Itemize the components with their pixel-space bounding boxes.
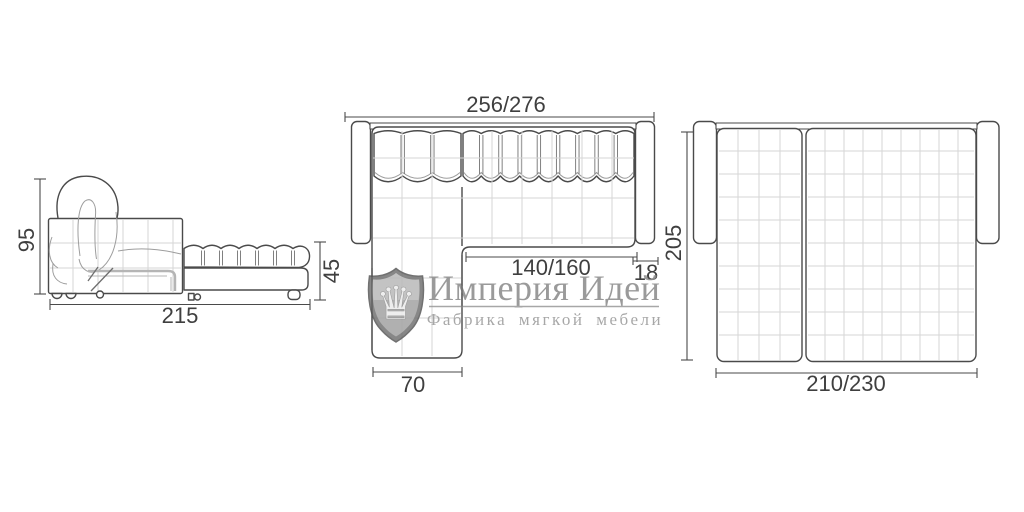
bed-armrest-left <box>694 122 717 244</box>
watermark-brand: Империя Идей <box>428 268 660 308</box>
dim-bed-depth: 205 <box>661 132 693 360</box>
furniture-dimensions-diagram: 95 <box>0 0 1024 512</box>
backrest-cushions-right <box>463 131 634 182</box>
bed-view: 205 210/230 <box>661 122 999 397</box>
armrest-right <box>636 122 655 244</box>
dim-bed-width: 210/230 <box>716 368 977 396</box>
dim-label-length: 215 <box>162 303 199 328</box>
chaise-foot <box>288 290 300 300</box>
dim-chaise-width: 70 <box>373 367 462 397</box>
backrest-arch <box>57 176 118 218</box>
sofa-body-outline <box>49 219 183 294</box>
dim-label-bed-width: 210/230 <box>806 371 886 396</box>
armrest-left <box>352 122 371 244</box>
bed-armrest-right <box>977 122 1000 244</box>
backrest-cushions-left <box>374 131 461 182</box>
dim-total-width: 256/276 <box>345 92 654 122</box>
diagram-canvas: 95 <box>0 0 1024 512</box>
bed-panel-right <box>806 129 976 362</box>
watermark-tagline: Фабрика мягкой мебели <box>427 310 663 329</box>
crown-icon: ♛ <box>375 276 416 330</box>
dim-seat-height: 45 <box>314 242 344 300</box>
dim-length: 215 <box>50 299 310 328</box>
dim-label-height: 95 <box>14 228 39 252</box>
dim-height: 95 <box>14 179 46 294</box>
dim-label-chaise-width: 70 <box>401 372 425 397</box>
dim-label-total-width: 256/276 <box>466 92 546 117</box>
top-view: 256/276 140/160 18 70 <box>345 92 658 397</box>
dim-label-bed-depth: 205 <box>661 225 686 262</box>
dim-label-seat-height: 45 <box>319 259 344 283</box>
chaise-base <box>184 268 308 290</box>
side-view: 95 <box>14 176 344 328</box>
chaise-cushions-side <box>184 245 310 267</box>
